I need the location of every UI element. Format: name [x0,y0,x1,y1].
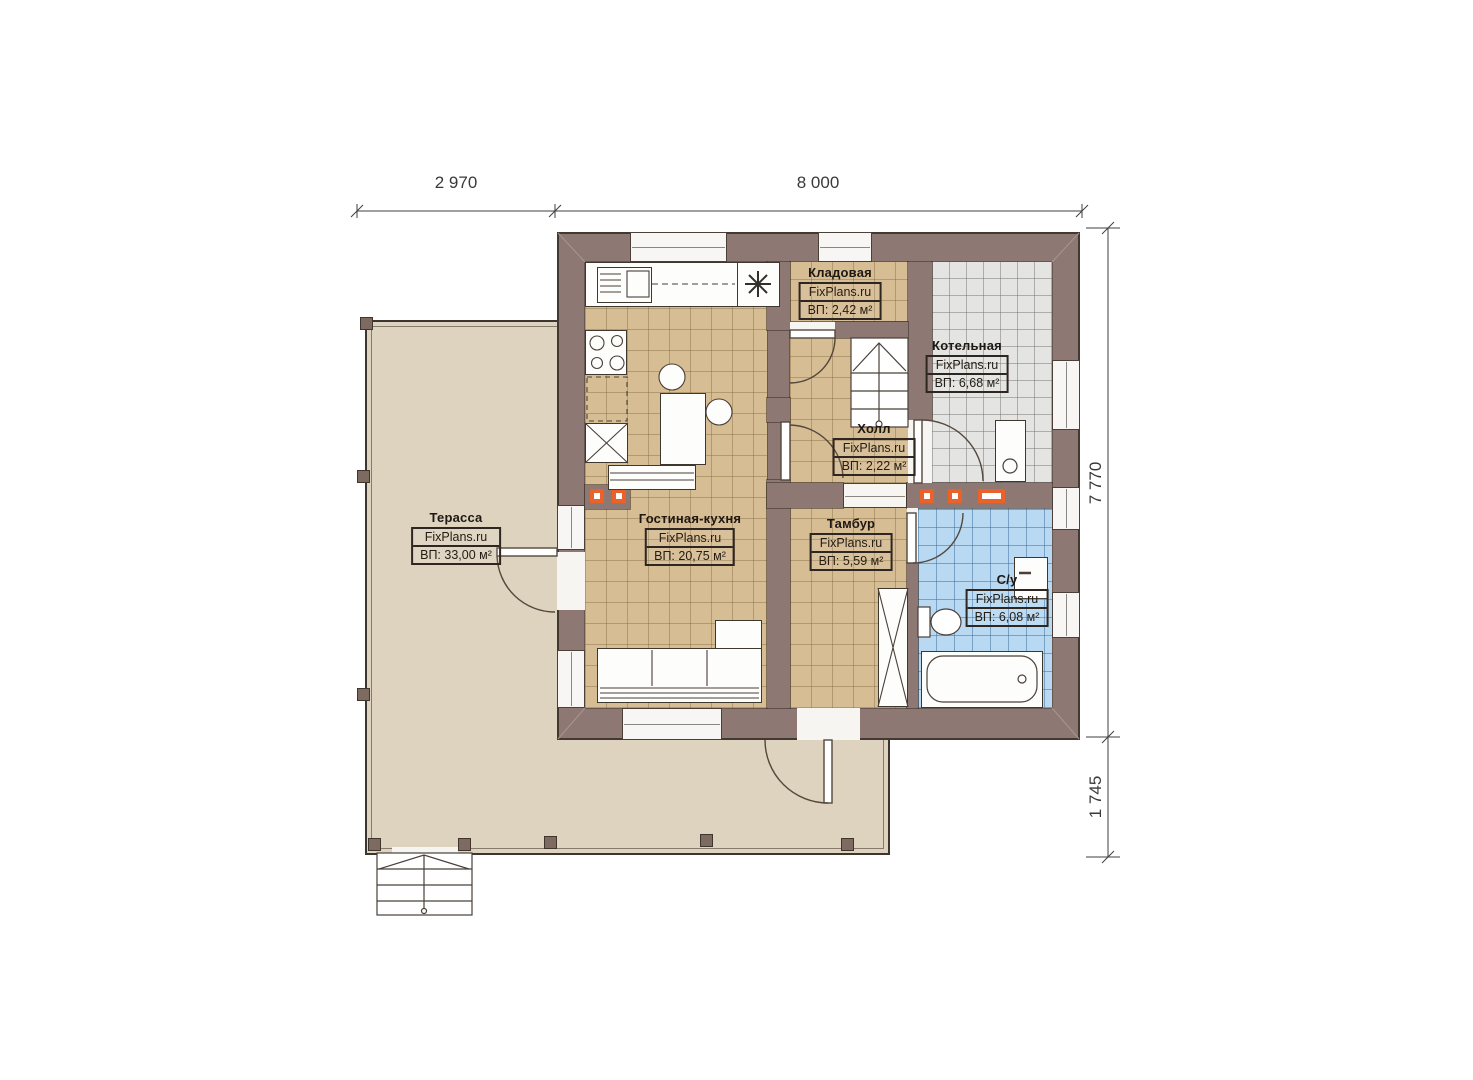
window [1052,360,1080,430]
window [557,650,585,708]
brand-watermark: FixPlans.ru [647,530,733,548]
window [818,232,872,262]
convector-marker [590,489,604,503]
brand-watermark: FixPlans.ru [928,357,1007,375]
wall-segment [907,563,918,708]
terrace-post [357,688,370,701]
room-info-box: FixPlans.ru ВП: 2,22 м² [833,438,916,476]
room-name: Терасса [430,510,483,525]
room-info-box: FixPlans.ru ВП: 33,00 м² [411,527,501,565]
brand-watermark: FixPlans.ru [413,529,499,547]
storage-door-opening [790,322,835,338]
window [557,505,585,550]
wall-segment [835,322,908,338]
wall-segment [767,483,843,508]
terrace-post [458,838,471,851]
room-area: ВП: 20,75 м² [647,548,733,564]
room-name: Холл [857,421,890,436]
convector-marker [978,489,1005,503]
hall-vestibule-opening [843,483,907,508]
sofa [597,648,762,703]
window [1052,487,1080,530]
terrace-post [360,317,373,330]
sideboard [608,465,696,490]
room-area: ВП: 6,68 м² [928,375,1007,391]
terrace-rail-opening [392,847,458,856]
room-area: ВП: 2,42 м² [801,302,880,318]
refrigerator [585,423,628,463]
terrace-post [841,838,854,851]
room-info-box: FixPlans.ru ВП: 6,68 м² [926,355,1009,393]
dim-top-left: 2 970 [435,173,478,193]
room-area: ВП: 33,00 м² [413,547,499,563]
terrace-post [700,834,713,847]
brand-watermark: FixPlans.ru [801,284,880,302]
kitchen-table [660,393,706,465]
convector-marker [948,489,962,503]
room-label-living-kitchen: Гостиная-кухня FixPlans.ru ВП: 20,75 м² [639,511,741,566]
entrance-door-opening [797,708,860,740]
room-name: С/у [997,572,1018,587]
vent-shaft [737,262,780,307]
room-name: Гостиная-кухня [639,511,741,526]
room-area: ВП: 5,59 м² [812,553,891,569]
bathroom-door-opening [907,508,918,563]
room-label-bathroom: С/у FixPlans.ru ВП: 6,08 м² [966,572,1049,627]
stove [585,330,627,375]
terrace-post [544,836,557,849]
room-info-box: FixPlans.ru ВП: 2,42 м² [799,282,882,320]
dim-top-right: 8 000 [797,173,840,193]
room-label-vestibule: Тамбур FixPlans.ru ВП: 5,59 м² [810,516,893,571]
room-info-box: FixPlans.ru ВП: 6,08 м² [966,589,1049,627]
dim-right-lower: 1 745 [1086,776,1106,819]
terrace-post [357,470,370,483]
window [622,708,722,740]
room-label-hall: Холл FixPlans.ru ВП: 2,22 м² [833,421,916,476]
wardrobe [878,588,908,707]
room-info-box: FixPlans.ru ВП: 20,75 м² [645,528,735,566]
brand-watermark: FixPlans.ru [812,535,891,553]
wall-segment [767,480,790,708]
room-label-boiler: Котельная FixPlans.ru ВП: 6,68 м² [926,338,1009,393]
room-area: ВП: 6,08 м² [968,609,1047,625]
window [1052,592,1080,638]
room-info-box: FixPlans.ru ВП: 5,59 м² [810,533,893,571]
convector-marker [920,489,934,503]
floor-plan: 2 970 8 000 7 770 1 745 Терасса FixPlans… [0,0,1473,1080]
brand-watermark: FixPlans.ru [835,440,914,458]
dim-right-upper: 7 770 [1086,462,1106,505]
wall-segment [767,398,790,422]
terrace-post [368,838,381,851]
room-name: Тамбур [827,516,875,531]
room-label-storage: Кладовая FixPlans.ru ВП: 2,42 м² [799,265,882,320]
room-name: Кладовая [808,265,872,280]
kitchen-sink [597,267,652,303]
boiler-unit [995,420,1026,482]
bathtub [921,651,1043,708]
room-label-terrace: Терасса FixPlans.ru ВП: 33,00 м² [411,510,501,565]
room-name: Котельная [932,338,1002,353]
room-area: ВП: 2,22 м² [835,458,914,474]
brand-watermark: FixPlans.ru [968,591,1047,609]
convector-marker [612,489,626,503]
window [630,232,727,262]
terrace-door-opening [557,552,585,610]
